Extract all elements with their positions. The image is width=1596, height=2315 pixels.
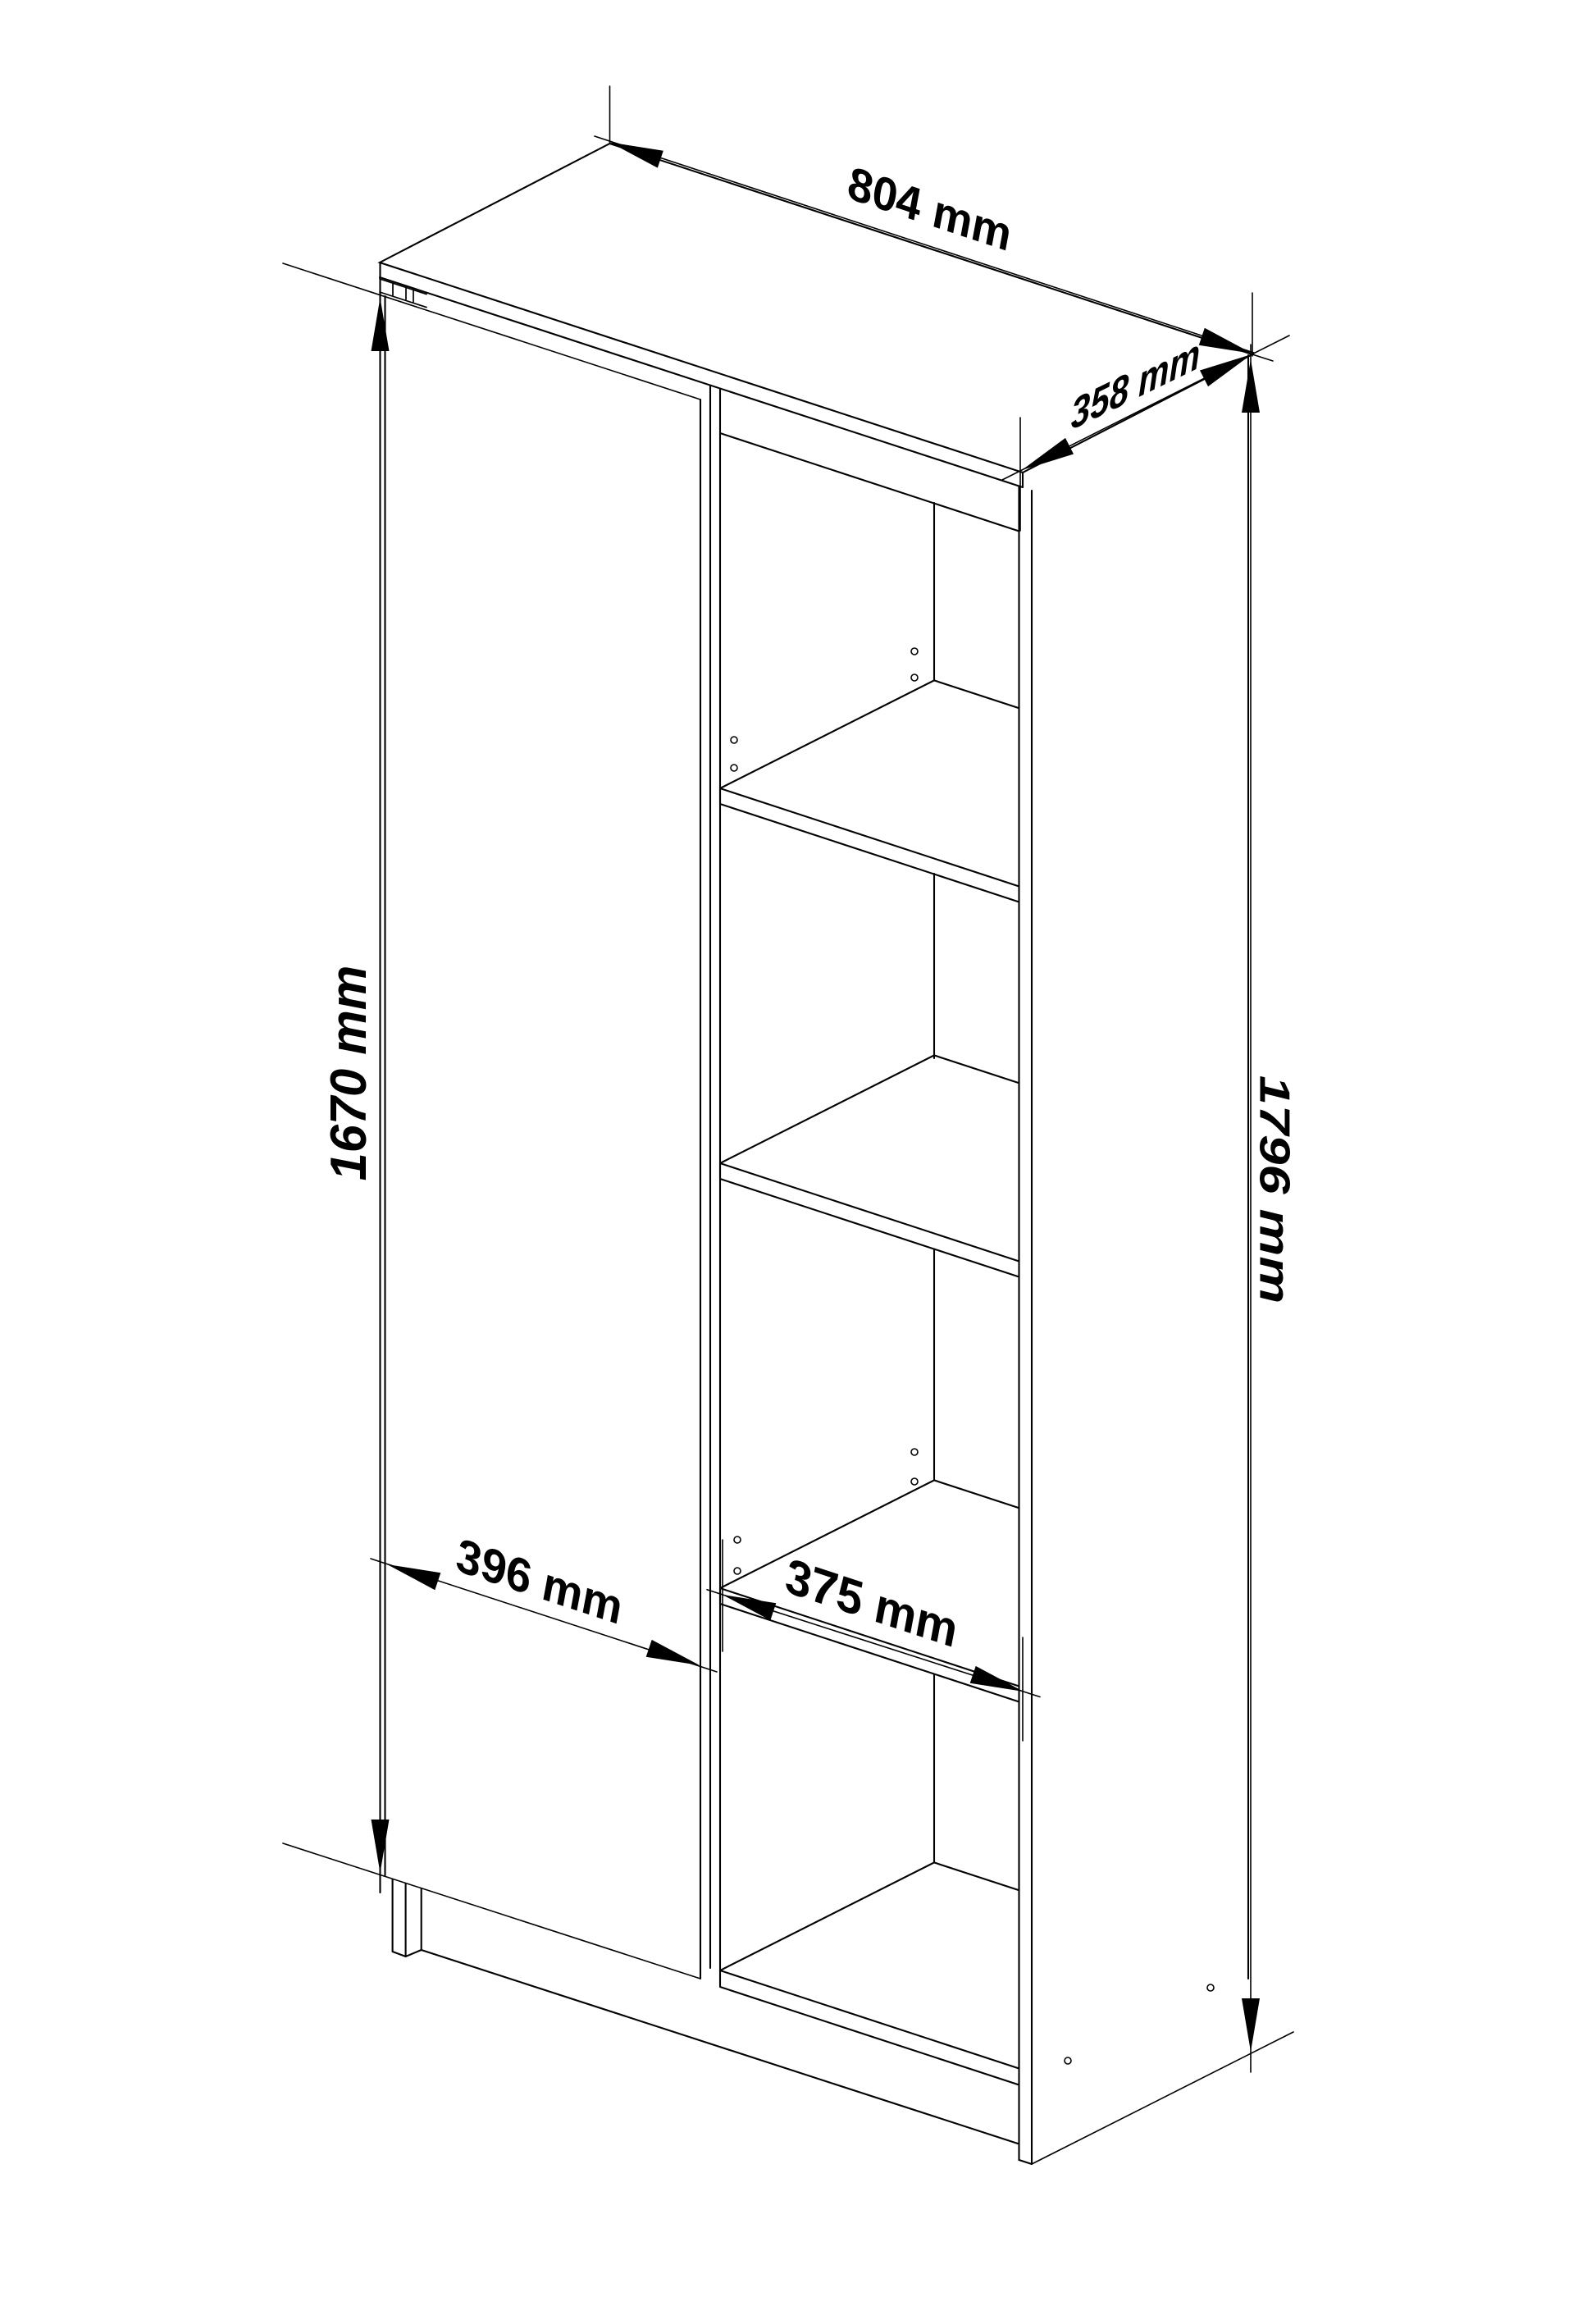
svg-text:1796 mm: 1796 mm — [1251, 1075, 1297, 1304]
svg-text:1670 mm: 1670 mm — [321, 966, 377, 1181]
